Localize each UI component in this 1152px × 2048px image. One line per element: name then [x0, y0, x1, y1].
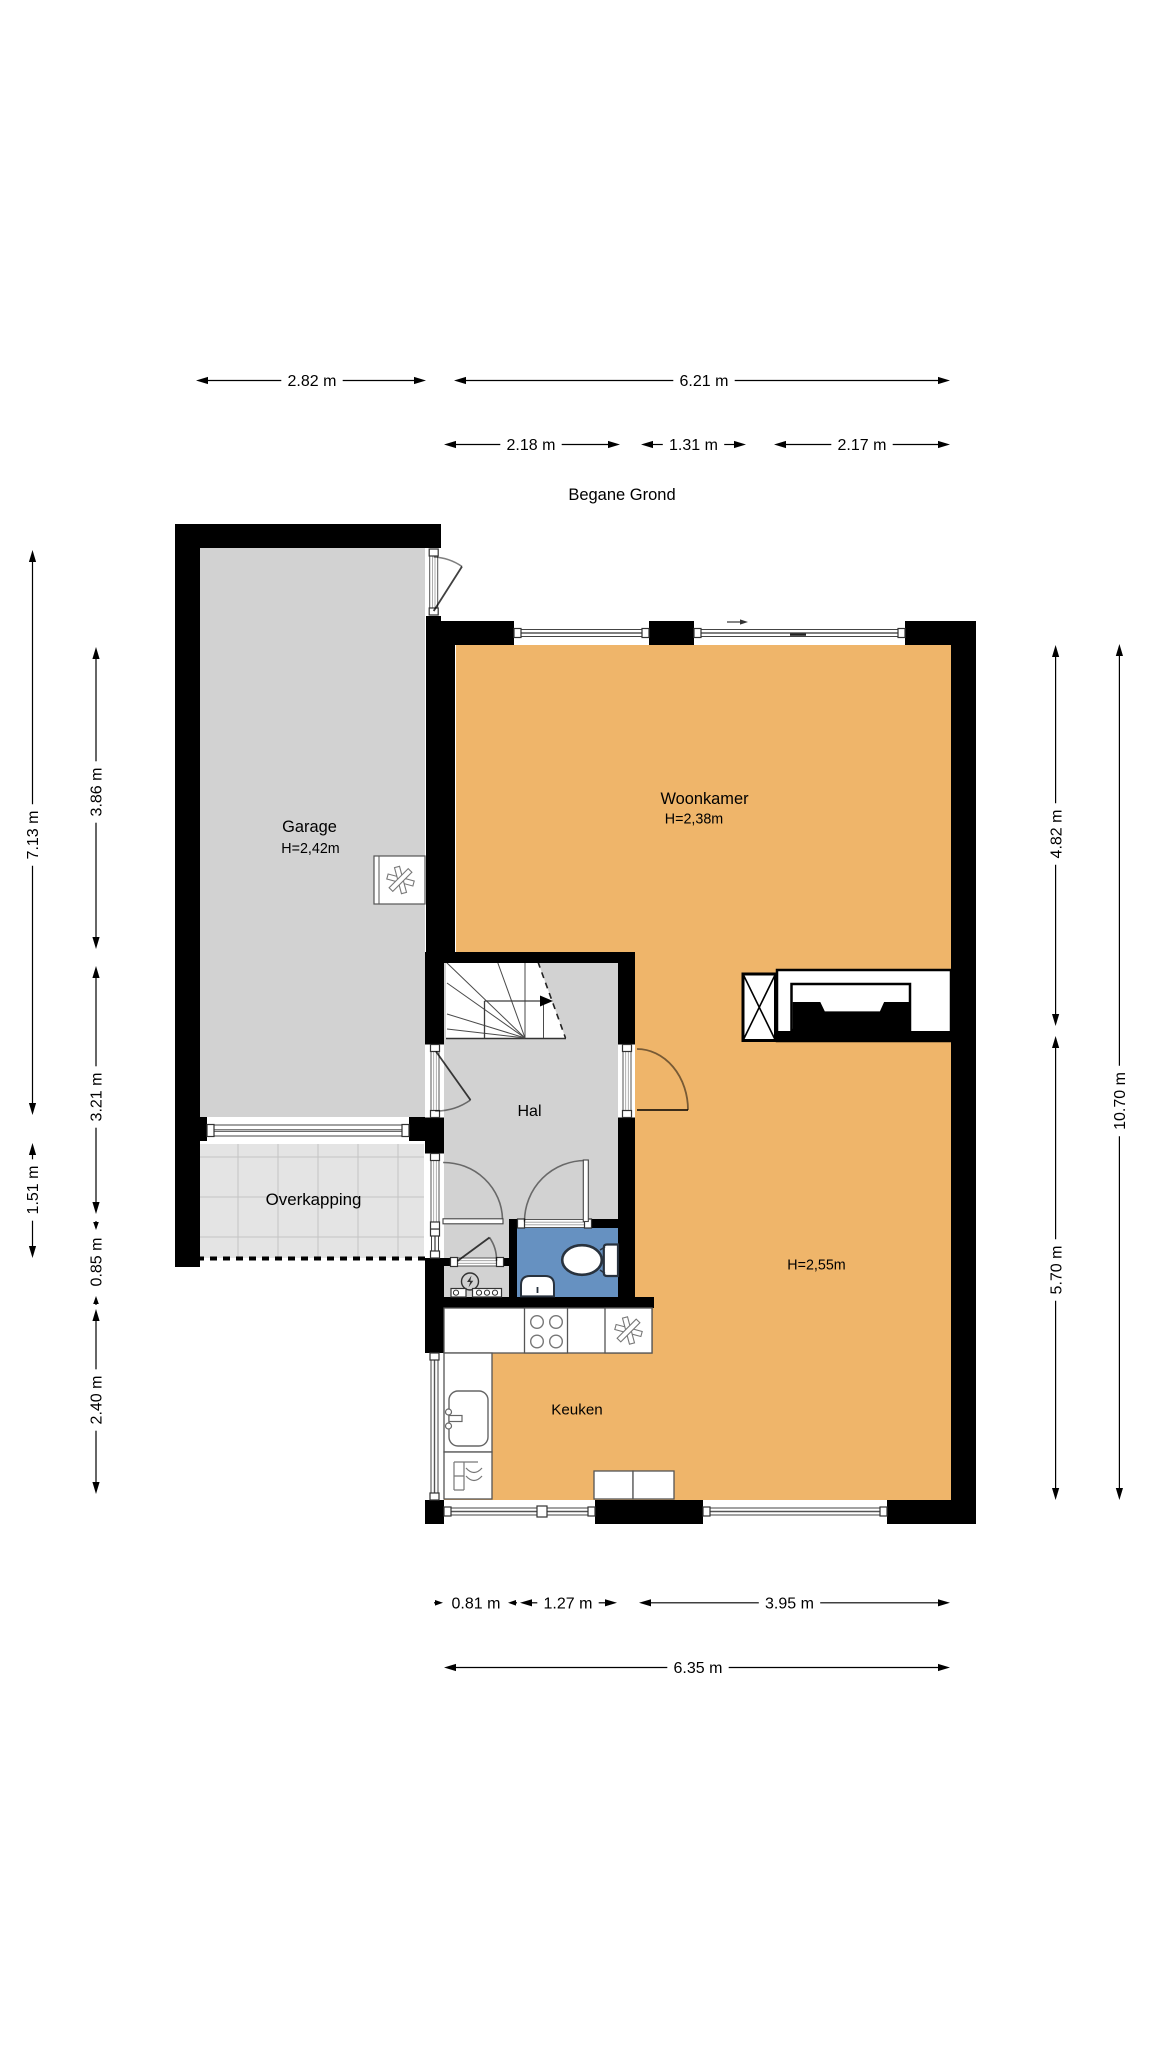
svg-text:3.21 m: 3.21 m	[89, 1073, 106, 1122]
svg-text:3.95 m: 3.95 m	[765, 1596, 814, 1613]
svg-text:2.18 m: 2.18 m	[507, 437, 556, 454]
svg-text:2.82 m: 2.82 m	[288, 373, 337, 390]
svg-text:Hal: Hal	[517, 1103, 541, 1120]
svg-text:1.31 m: 1.31 m	[669, 437, 718, 454]
svg-text:H=2,55m: H=2,55m	[787, 1258, 845, 1274]
svg-text:3.86 m: 3.86 m	[89, 768, 106, 817]
svg-text:4.82 m: 4.82 m	[1048, 810, 1065, 859]
svg-text:Woonkamer: Woonkamer	[660, 790, 749, 808]
svg-text:Begane Grond: Begane Grond	[568, 486, 675, 504]
svg-text:1.27 m: 1.27 m	[544, 1596, 593, 1613]
svg-text:0.85 m: 0.85 m	[89, 1238, 106, 1287]
svg-text:6.35 m: 6.35 m	[674, 1660, 723, 1677]
svg-text:H=2,42m: H=2,42m	[281, 841, 339, 857]
svg-text:1.51 m: 1.51 m	[25, 1166, 42, 1215]
svg-text:7.13 m: 7.13 m	[25, 811, 42, 860]
svg-text:0.81 m: 0.81 m	[452, 1596, 501, 1613]
svg-text:2.17 m: 2.17 m	[838, 437, 887, 454]
svg-text:H=2,38m: H=2,38m	[665, 812, 723, 828]
svg-text:10.70 m: 10.70 m	[1112, 1072, 1129, 1130]
svg-text:2.40 m: 2.40 m	[89, 1376, 106, 1425]
svg-text:Garage: Garage	[282, 818, 337, 836]
svg-text:5.70 m: 5.70 m	[1048, 1246, 1065, 1295]
svg-text:6.21 m: 6.21 m	[680, 373, 729, 390]
svg-text:Keuken: Keuken	[551, 1402, 603, 1419]
svg-text:Overkapping: Overkapping	[266, 1190, 362, 1209]
